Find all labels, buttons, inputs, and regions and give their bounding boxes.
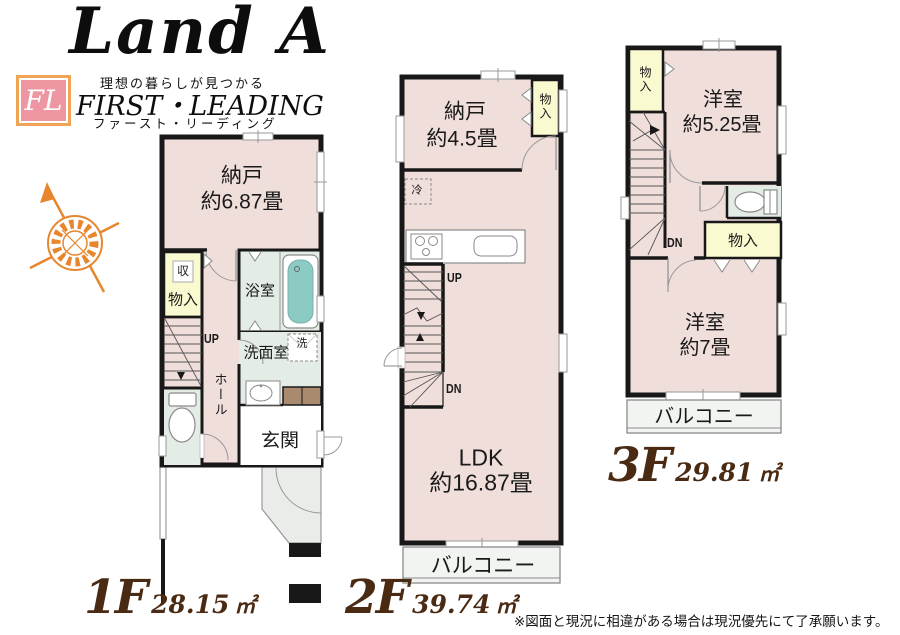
stairs-dn-label-3f: DN [667, 236, 682, 249]
room-label-3f-western-a: 洋室 [703, 90, 743, 110]
room-label-3f-closet-top: 物入 [639, 66, 651, 94]
room-label-2f-storage: 納戸 [444, 102, 486, 123]
sink-icon [246, 381, 280, 405]
floor-area-unit: ㎡ [758, 458, 779, 488]
stairs-dn-label-2f: DN [446, 382, 461, 395]
room-label-1f-washer: 洗 [297, 339, 308, 350]
floor-number: 2F [345, 570, 407, 625]
room-label-1f-hall: ホール [214, 373, 227, 418]
floor-number: 3F [608, 438, 670, 493]
floor-tag-2f: 2F 39.74 ㎡ [345, 570, 516, 625]
entrance-step [289, 584, 321, 603]
compass-icon [30, 182, 119, 292]
room-label-1f-closet-top: 収 [177, 265, 189, 277]
room-label-2f-fridge: 冷 [412, 186, 423, 197]
room-label-1f-closet: 物入 [168, 293, 198, 308]
floor-area-value: 29.81 [675, 458, 753, 487]
brand-logo: Land A [25, 0, 375, 69]
approach-porch [262, 467, 321, 543]
toilet-icon-1f [169, 393, 196, 442]
room-label-1f-storage-size: 約6.87畳 [201, 192, 284, 213]
room-label-2f-ldk: LDK [459, 447, 504, 470]
room-label-2f-storage-size: 約4.5畳 [426, 129, 497, 150]
room-label-3f-western-b: 洋室 [685, 313, 725, 333]
door-arc [324, 437, 342, 455]
bathtub-icon [283, 255, 318, 328]
room-label-3f-western-a-size: 約5.25畳 [683, 115, 762, 135]
room-label-1f-washroom: 洗面室 [243, 346, 288, 361]
brand-badge: FL [16, 75, 71, 126]
room-label-2f-closet: 物入 [539, 93, 551, 121]
toilet-icon-3f [735, 190, 777, 214]
disclaimer-text: ※図面と現況に相違がある場合は現況優先にて了承願います。 [514, 610, 888, 630]
room-label-1f-storage: 納戸 [221, 166, 263, 187]
site-fence [160, 467, 166, 539]
floor-area-unit: ㎡ [234, 590, 255, 620]
room-label-2f-ldk-size: 約16.87畳 [429, 472, 533, 495]
floor-tag-3f: 3F 29.81 ㎡ [608, 438, 779, 493]
room-label-3f-balcony: バルコニー [654, 407, 754, 427]
entrance-step [289, 543, 321, 557]
floor-area-value: 28.15 [151, 590, 229, 619]
room-label-3f-closet-mid: 物入 [728, 234, 758, 249]
floorplan-flyer: Land A 理想の暮らしが見つかる FL FIRST・LEADING ファース… [0, 0, 900, 635]
floor-tag-1f: 1F 28.15 ㎡ [84, 570, 255, 625]
room-label-1f-entrance: 玄関 [261, 432, 299, 451]
kitchen-icon [406, 230, 525, 263]
floor-number: 1F [84, 570, 146, 625]
room-label-3f-western-b-size: 約7畳 [679, 338, 730, 358]
stairs-up-label-2f: UP [447, 271, 462, 284]
floor-area-value: 39.74 [412, 590, 490, 619]
room-label-1f-bath: 浴室 [245, 284, 275, 299]
company-name-ja: ファースト・リーディング [93, 113, 278, 132]
stairs-up-label-1f: UP [204, 332, 219, 345]
